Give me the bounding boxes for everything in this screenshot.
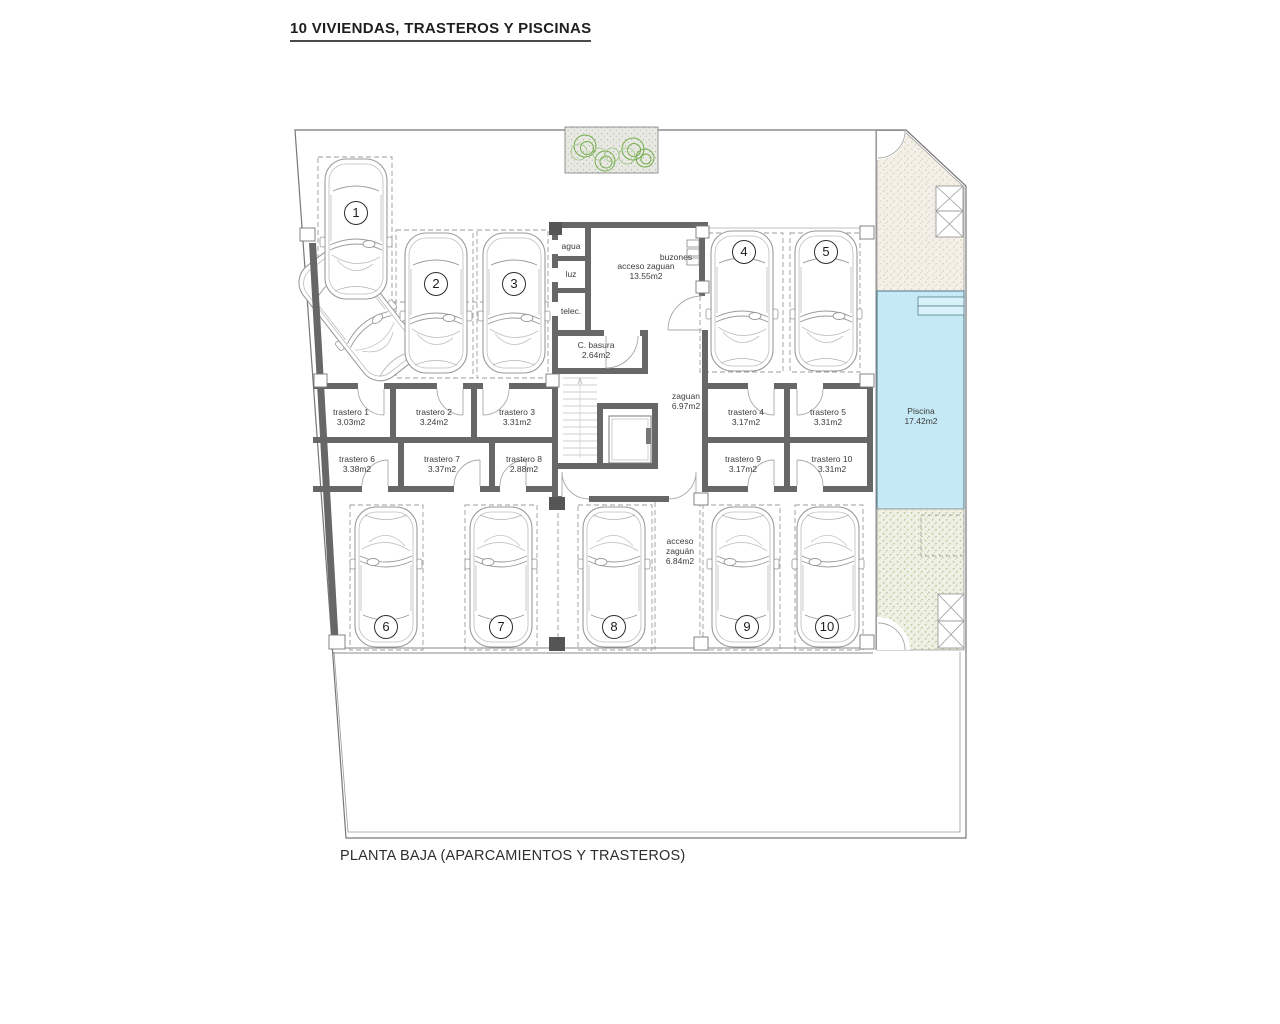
room-label-trastero-1: trastero 13.03m2 (333, 407, 369, 427)
car-3 (478, 233, 550, 373)
parking-number-9: 9 (735, 615, 759, 639)
parking-number-7: 7 (489, 615, 513, 639)
pool (877, 291, 964, 509)
room-label-acceso-zaguan-sur: acceso zaguán6.84m2 (656, 536, 704, 566)
room-label-telec: telec. (561, 306, 581, 316)
parking-number-1: 1 (344, 201, 368, 225)
room-label-trastero-9: trastero 93.17m2 (725, 454, 761, 474)
stairs (563, 378, 597, 458)
room-label-agua: agua (562, 241, 581, 251)
skylight-box-icon (936, 186, 963, 237)
room-label-zaguan: zaguan6.97m2 (672, 391, 700, 411)
room-label-trastero-2: trastero 23.24m2 (416, 407, 452, 427)
plan-drawing (0, 0, 1280, 1024)
planter (565, 127, 658, 173)
building-bottom-wall (333, 648, 873, 653)
parking-number-6: 6 (374, 615, 398, 639)
room-label-piscina: Piscina17.42m2 (904, 406, 937, 426)
parking-number-4: 4 (732, 240, 756, 264)
room-label-trastero-3: trastero 33.31m2 (499, 407, 535, 427)
car-2 (400, 233, 472, 373)
garden-bottom (877, 509, 964, 650)
room-label-trastero-8: trastero 82.88m2 (506, 454, 542, 474)
room-label-trastero-7: trastero 73.37m2 (424, 454, 460, 474)
parking-number-10: 10 (815, 615, 839, 639)
plan-caption: PLANTA BAJA (APARCAMIENTOS Y TRASTEROS) (340, 848, 685, 864)
parking-number-3: 3 (502, 272, 526, 296)
room-label-trastero-5: trastero 53.31m2 (810, 407, 846, 427)
floor-plan-page: 10 VIVIENDAS, TRASTEROS Y PISCINAS (0, 0, 1280, 1024)
skylight-box-icon (938, 594, 964, 648)
parking-number-8: 8 (602, 615, 626, 639)
cars (287, 159, 864, 647)
room-label-c-basura: C. basura2.64m2 (578, 340, 615, 360)
room-label-trastero-4: trastero 43.17m2 (728, 407, 764, 427)
parking-number-2: 2 (424, 272, 448, 296)
room-label-luz: luz (566, 269, 577, 279)
garden-top (877, 131, 964, 291)
room-label-acceso-zaguan: acceso zaguan13.55m2 (617, 261, 674, 281)
room-label-trastero-10: trastero 103.31m2 (812, 454, 853, 474)
elevator (609, 416, 651, 463)
elevator-door-icon (646, 428, 651, 444)
pool-steps (918, 297, 964, 315)
room-label-trastero-6: trastero 63.38m2 (339, 454, 375, 474)
parking-number-5: 5 (814, 240, 838, 264)
floor-plan: agua luz telec. buzones acceso zaguan13.… (0, 0, 1280, 1024)
car-1 (320, 159, 392, 299)
